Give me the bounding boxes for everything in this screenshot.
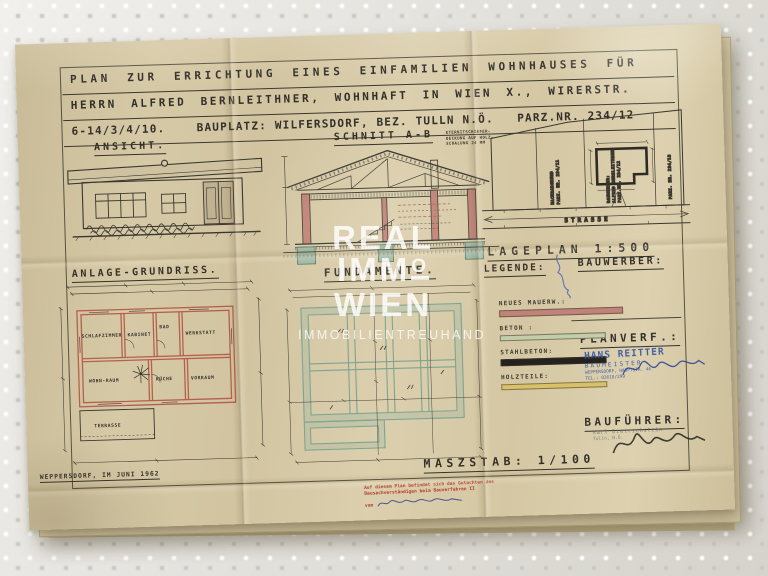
photo-of-plan: PLAN ZUR ERRICHTUNG EINES EINFAMILIEN WO… <box>0 0 768 576</box>
bauwerber-label: BAUWERBER: <box>578 255 665 272</box>
masonry-walls <box>77 306 236 407</box>
legend-item: BETON : <box>499 321 621 341</box>
blue-pen-scribble <box>543 252 588 301</box>
room-label: TERRASSE <box>94 423 121 430</box>
legend-swatch-beton <box>500 332 606 342</box>
legend-swatch-neues-mauerwerk <box>499 307 623 317</box>
roof-vent <box>161 160 167 166</box>
legend-swatch-holzteile <box>501 381 607 391</box>
window-left <box>95 193 146 218</box>
legend: NEUES MAUERW.: BETON : STAHLBETON: HOLZT… <box>499 297 624 399</box>
watermark-subtitle: IMMOBILIENTREUHAND <box>298 328 468 342</box>
legend-item-label: BETON : <box>499 321 621 332</box>
room-label: BAD <box>159 324 169 330</box>
plant-symbol <box>133 365 151 383</box>
parcel-left-line2: PARZ. NR. 234/11 <box>555 159 561 204</box>
window-center <box>161 194 186 214</box>
watermark-immo-prefix: IMM <box>337 251 410 288</box>
parcel-mid-line3: PARZ.NR. 234/12 <box>616 160 622 202</box>
room-label: SCHLAFZIMMER <box>82 333 123 340</box>
roof-truss <box>286 148 489 191</box>
room-label: VORRAUM <box>191 375 215 382</box>
watermark-immo-o: O <box>411 257 429 280</box>
dimension-line <box>281 157 290 245</box>
planverf-signature <box>620 348 707 385</box>
watermark: REAL IMMO WIEN IMMOBILIENTREUHAND <box>298 222 468 342</box>
strasse-label: STRASSE <box>564 216 610 224</box>
watermark-immo: IMMO <box>298 254 468 289</box>
watermark-real: REAL <box>298 222 468 254</box>
baufuehrer-signature <box>608 422 709 465</box>
watermark-wien: WIEN <box>298 289 468 321</box>
parcel-right-line1: PARZ. NR. 234/13 <box>666 154 672 199</box>
room-label: WOHN-RAUM <box>89 378 119 385</box>
room-label: KÜCHE <box>156 375 173 382</box>
room-label: KABINET <box>128 332 152 339</box>
lageplan-site-drawing: STRASSE NACHBARGRUND PARZ. NR. 234/11 BA… <box>477 99 695 245</box>
red-stamp-line3: vom <box>365 504 374 510</box>
parcel-left-line1: NACHBARGRUND <box>549 171 555 205</box>
site-plan: STRASSE NACHBARGRUND PARZ. NR. 234/11 BA… <box>479 110 690 229</box>
room-label: WERKSTATT <box>186 330 216 337</box>
room-labels: SCHLAFZIMMER KABINET BAD WERKSTATT WOHN-… <box>81 323 218 430</box>
ceiling-band <box>302 189 476 200</box>
house-footprint <box>596 148 647 184</box>
red-annotations <box>398 204 456 218</box>
